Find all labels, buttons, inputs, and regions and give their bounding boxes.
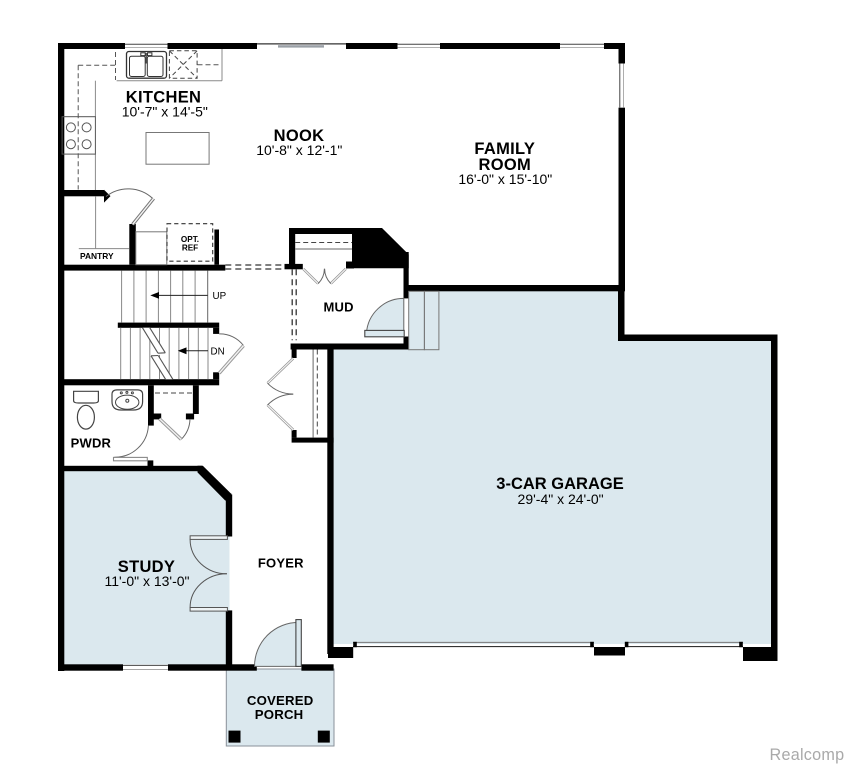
svg-text:DN: DN xyxy=(211,346,225,357)
svg-text:MUD: MUD xyxy=(323,300,353,315)
svg-text:FOYER: FOYER xyxy=(258,556,304,571)
svg-text:PORCH: PORCH xyxy=(255,707,304,722)
svg-text:UP: UP xyxy=(213,291,227,302)
svg-text:10'-8" x 12'-1": 10'-8" x 12'-1" xyxy=(256,142,342,158)
svg-text:16'-0" x 15'-10": 16'-0" x 15'-10" xyxy=(458,171,552,187)
svg-text:Realcomp: Realcomp xyxy=(770,746,845,764)
svg-text:PANTRY: PANTRY xyxy=(80,251,114,261)
svg-text:COVERED: COVERED xyxy=(247,693,314,708)
svg-text:PWDR: PWDR xyxy=(71,435,112,450)
svg-text:10'-7" x 14'-5": 10'-7" x 14'-5" xyxy=(122,104,208,120)
svg-text:29'-4" x 24'-0": 29'-4" x 24'-0" xyxy=(518,491,604,507)
svg-text:11'-0" x 13'-0": 11'-0" x 13'-0" xyxy=(104,573,189,589)
svg-text:REF: REF xyxy=(182,243,198,252)
